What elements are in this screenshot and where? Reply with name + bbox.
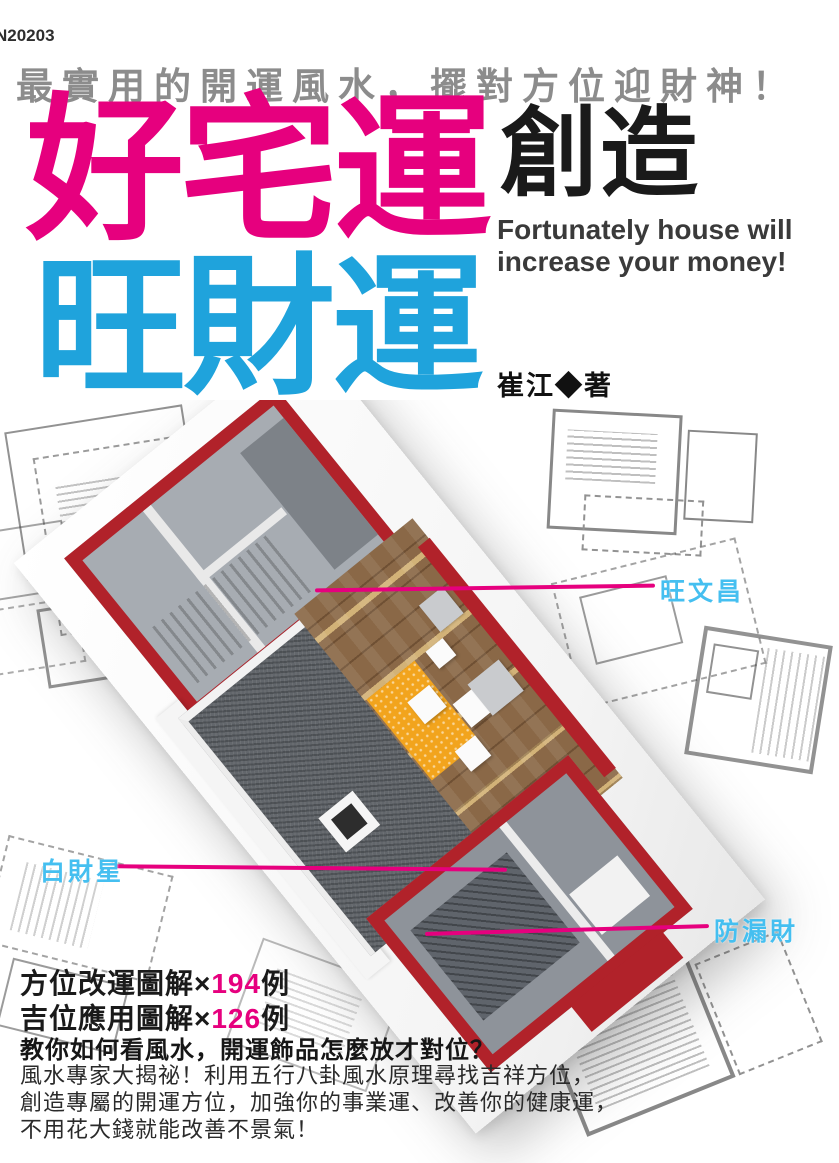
callout-label-baicaixing: 白財星 (40, 852, 124, 888)
catalog-code: N20203 (0, 26, 55, 46)
main-title-pink: 好宅運 (26, 92, 488, 250)
stat-1-number: 194 (211, 968, 261, 999)
stat-1-prefix: 方位改運圖解× (20, 968, 211, 999)
main-title-blue: 旺財運 (34, 252, 481, 404)
footer-description-line1: 風水專家大揭祕！利用五行八卦風水原理尋找吉祥方位， (20, 1062, 618, 1089)
callout-label-fangloucai: 防漏財 (714, 912, 798, 948)
subtitle-chinese: 創造 (500, 104, 700, 202)
footer-headline: 教你如何看風水，開運飾品怎麼放才對位？ (20, 1030, 495, 1065)
subtitle-english-line2: increase your money! (497, 246, 793, 278)
footer-description: 風水專家大揭祕！利用五行八卦風水原理尋找吉祥方位， 創造專屬的開運方位，加強你的… (20, 1062, 618, 1143)
subtitle-english: Fortunately house will increase your mon… (497, 214, 793, 278)
stat-line-1: 方位改運圖解×194例 (20, 962, 290, 1002)
stat-1-suffix: 例 (261, 968, 290, 999)
footer-description-line3: 不用花大錢就能改善不景氣！ (20, 1116, 618, 1143)
subtitle-english-line1: Fortunately house will (497, 214, 793, 246)
footer-description-line2: 創造專屬的開運方位，加強你的事業運、改善你的健康運， (20, 1089, 618, 1116)
footer-text-block: 方位改運圖解×194例 吉位應用圖解×126例 教你如何看風水，開運飾品怎麼放才… (0, 956, 839, 1163)
author-byline: 崔江◆著 (497, 364, 613, 403)
callout-label-wangwenchang: 旺文昌 (660, 572, 744, 608)
blueprint-sketch (676, 617, 839, 803)
